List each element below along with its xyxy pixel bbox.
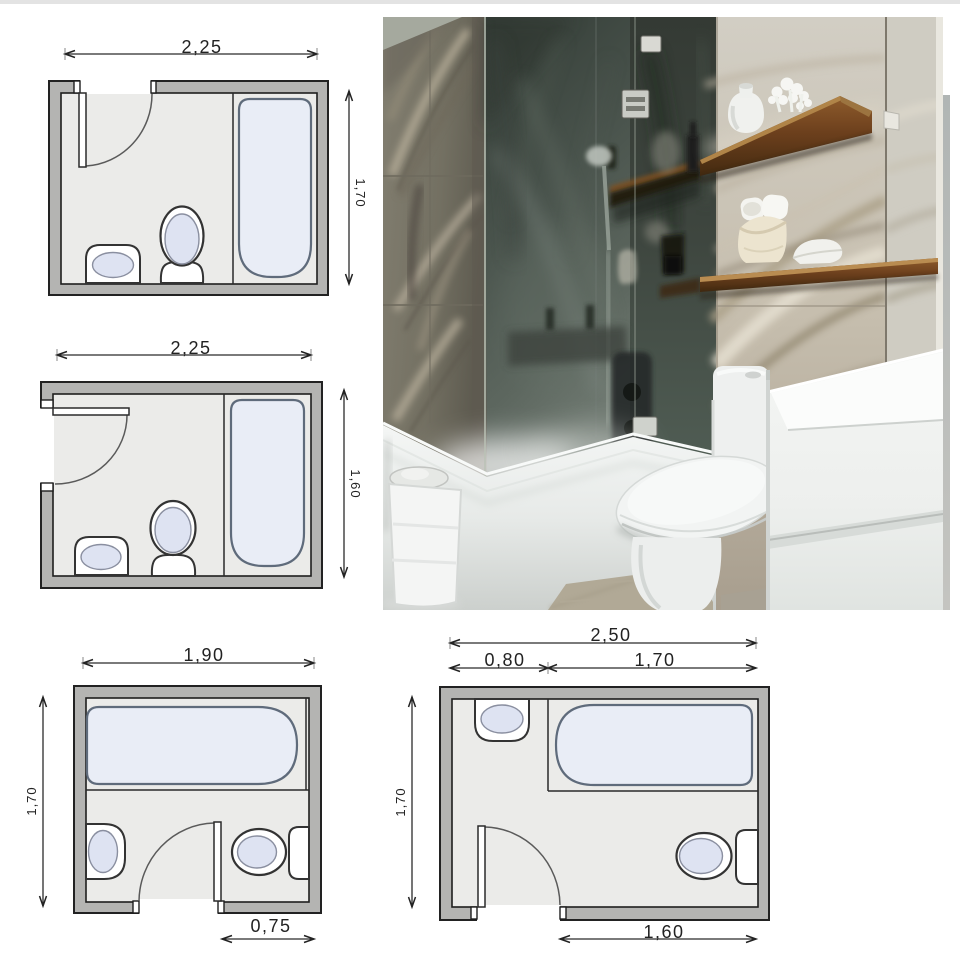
svg-text:1,60: 1,60 <box>643 922 684 942</box>
svg-text:1,70: 1,70 <box>353 178 368 207</box>
svg-text:2,50: 2,50 <box>590 625 631 645</box>
svg-text:1,70: 1,70 <box>393 787 408 816</box>
svg-text:2,25: 2,25 <box>170 338 211 358</box>
svg-text:2,25: 2,25 <box>181 37 222 57</box>
svg-text:1,90: 1,90 <box>183 645 224 665</box>
svg-text:0,80: 0,80 <box>484 650 525 670</box>
svg-text:1,70: 1,70 <box>634 650 675 670</box>
svg-text:1,70: 1,70 <box>24 786 39 815</box>
svg-text:0,75: 0,75 <box>250 916 291 936</box>
svg-text:1,60: 1,60 <box>348 469 363 498</box>
